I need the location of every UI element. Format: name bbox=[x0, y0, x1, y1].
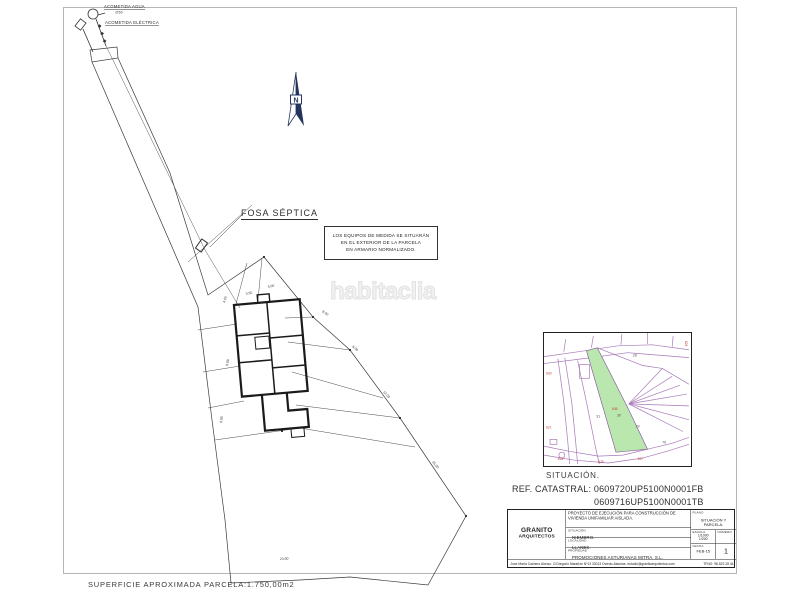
dimension-label: 8.50 bbox=[219, 416, 224, 423]
red-map-label: 625 bbox=[598, 460, 604, 464]
utility-line bbox=[106, 46, 240, 308]
dimension-label: 3.50 bbox=[245, 291, 252, 296]
acometida-electrica-label-group: ACOMETIDA ELÉCTRICA bbox=[105, 20, 265, 32]
dimension-label: 9.00 bbox=[225, 359, 230, 366]
dimension-label: 24.00 bbox=[280, 557, 289, 561]
dimension-label: 4.00 bbox=[222, 296, 228, 304]
fecha-value: FEB-15 bbox=[693, 549, 715, 554]
title-block-footer: Jose María Cachero Alonso. C/Gregorio Ma… bbox=[508, 559, 736, 569]
situacion-caption: SITUACIÓN. bbox=[546, 471, 600, 480]
red-map-label: 630 bbox=[546, 371, 552, 375]
red-map-label: 636 bbox=[612, 407, 618, 411]
numero-label: NÚMERO bbox=[718, 531, 735, 535]
dimension-label: 12.00 bbox=[382, 390, 391, 399]
catastral-ref-label: REF. CATASTRAL: bbox=[512, 484, 591, 494]
parcel-area-caption: SUPERFICIE APROXIMADA PARCELA:1.750,00m2 bbox=[88, 580, 295, 589]
title-block: GRANITO ARQUITECTOS PROYECTO DE EJECUCIÓ… bbox=[507, 509, 735, 568]
localidad-label: LOCALIDAD bbox=[568, 539, 689, 543]
fecha-cell: FECHA FEB-15 bbox=[691, 544, 716, 559]
escala-value-2: 1/200 bbox=[693, 538, 715, 542]
firm-name-line2: ARQUITECTOS bbox=[508, 534, 566, 540]
dimension-label: 8.00 bbox=[321, 310, 329, 317]
inset-map-canvas: 28 31 30 29 76 630 621 636 628 625 627 6… bbox=[544, 333, 689, 464]
note-line-2: EN EL EXTERIOR DE LA PARCELA bbox=[341, 240, 421, 247]
acometida-agua-diameter: ∅50 bbox=[104, 11, 134, 15]
building-footprint bbox=[233, 291, 311, 441]
architect-address: Jose María Cachero Alonso. C/Gregorio Ma… bbox=[511, 563, 675, 567]
escala-cell: ESCALA 1/1000 1/200 bbox=[691, 530, 716, 544]
architect-phone: TFNO: 98-523 28 44 bbox=[703, 563, 733, 567]
cadastral-inset-map: 28 31 30 29 76 630 621 636 628 625 627 6… bbox=[543, 332, 692, 467]
highlighted-parcel bbox=[586, 348, 647, 452]
situacion-label: SITUACIÓN bbox=[568, 529, 689, 533]
parcel-number: 31 bbox=[596, 415, 600, 419]
north-arrow-icon: N bbox=[288, 72, 304, 126]
situacion-cell: SITUACIÓN NIEMBRO. bbox=[566, 528, 691, 538]
fosa-septica-label-wrap: FOSA SÉPTICA bbox=[241, 203, 318, 221]
numero-value-cell: 1 bbox=[716, 544, 736, 559]
parcel-number: 30 bbox=[617, 414, 621, 418]
acometida-agua-label: ACOMETIDA AGUA bbox=[104, 4, 145, 10]
parcel-number: 76 bbox=[662, 440, 666, 444]
catastral-ref-line2: 0609716UP5100N0001TB bbox=[594, 497, 704, 507]
dimension-label: 5.00 bbox=[267, 284, 274, 289]
numero-label-cell: NÚMERO bbox=[716, 530, 736, 544]
project-title-cell: PROYECTO DE EJECUCIÓN PARA CONSTRUCCIÓN … bbox=[566, 510, 691, 528]
propiedad-label: PROPIEDAD bbox=[568, 549, 689, 553]
dimension-label: 6.00 bbox=[351, 345, 359, 352]
parcel-number: 28 bbox=[633, 354, 637, 358]
note-line-3: EN ARMARIO NORMALIZADO. bbox=[346, 246, 416, 253]
red-map-label: 627 bbox=[638, 457, 644, 461]
habitaclia-watermark: habitaclia bbox=[330, 278, 436, 306]
fecha-label: FECHA bbox=[693, 545, 715, 549]
fosa-septica-label: FOSA SÉPTICA bbox=[241, 208, 318, 220]
catastral-ref-line1: REF. CATASTRAL: 0609720UP5100N0001FB bbox=[512, 484, 703, 494]
numero-value: 1 bbox=[716, 547, 736, 556]
acometida-electrica-label: ACOMETIDA ELÉCTRICA bbox=[105, 20, 159, 26]
acometida-symbols bbox=[75, 9, 106, 52]
parcel-number: 29 bbox=[636, 425, 640, 429]
water-connection-icon bbox=[88, 9, 98, 19]
north-letter: N bbox=[293, 97, 298, 104]
project-title: PROYECTO DE EJECUCIÓN PARA CONSTRUCCIÓN … bbox=[568, 511, 676, 521]
propiedad-cell: PROPIEDAD PROMOCIONES ASTURIANAS MITRA, … bbox=[566, 548, 691, 559]
electric-connection-icon bbox=[75, 19, 86, 30]
red-map-label: 621 bbox=[546, 426, 552, 430]
firm-logo: GRANITO ARQUITECTOS bbox=[508, 510, 566, 559]
red-map-label: 628 bbox=[558, 457, 564, 461]
dimension-labels: 4.00 3.50 5.00 8.00 6.00 12.00 15.00 9.0… bbox=[219, 284, 440, 561]
plano-cell: PLANO SITUACIÓN Y PARCELA. bbox=[691, 510, 736, 530]
dimension-label: 15.00 bbox=[431, 460, 439, 469]
note-line-1: LOS EQUIPOS DE MEDIDA SE SITUARÁN bbox=[333, 233, 429, 240]
red-map-label: 626 bbox=[684, 341, 688, 347]
parcel-outline bbox=[90, 47, 466, 585]
catastral-ref-value-1: 0609720UP5100N0001FB bbox=[594, 484, 704, 494]
firm-name-line1: GRANITO bbox=[508, 526, 566, 534]
plano-label: PLANO bbox=[693, 511, 735, 515]
plan-sheet: { "plan": { "watermark": "habitaclia", "… bbox=[0, 0, 800, 600]
localidad-cell: LOCALIDAD LLANES. bbox=[566, 538, 691, 548]
plano-value: SITUACIÓN Y PARCELA. bbox=[693, 518, 735, 527]
catastral-ref-value-2: 0609716UP5100N0001TB bbox=[594, 497, 704, 507]
